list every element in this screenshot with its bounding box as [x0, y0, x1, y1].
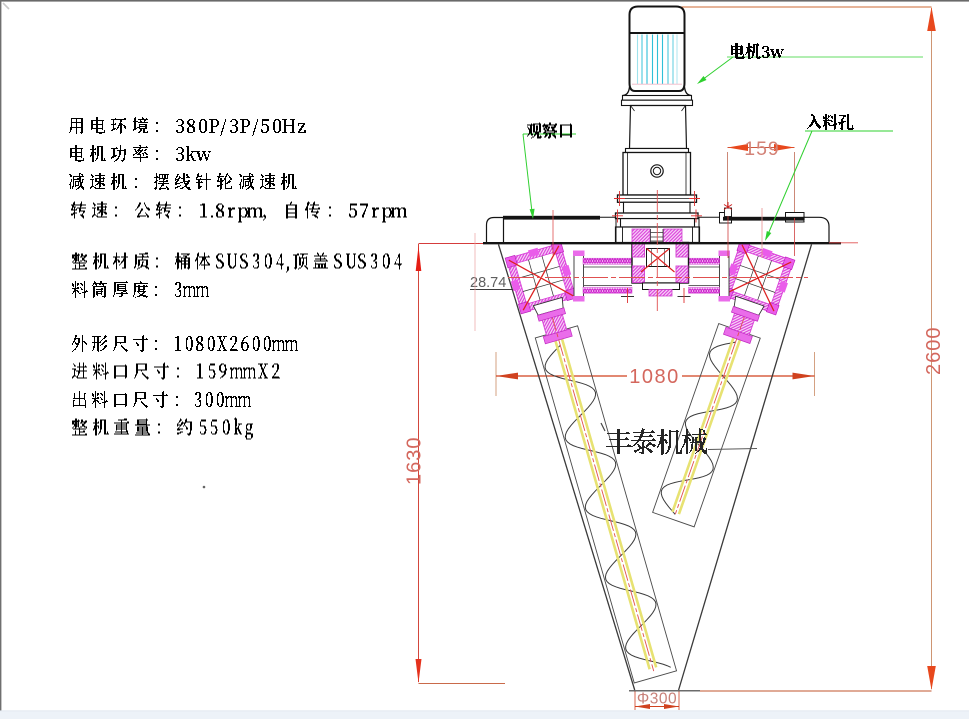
svg-text:28.74: 28.74	[470, 275, 506, 291]
svg-text:1080: 1080	[629, 366, 680, 388]
svg-text:159: 159	[744, 138, 780, 160]
svg-text:Φ300: Φ300	[637, 691, 677, 708]
svg-text:1630: 1630	[404, 437, 426, 486]
svg-text:2600: 2600	[923, 327, 945, 376]
